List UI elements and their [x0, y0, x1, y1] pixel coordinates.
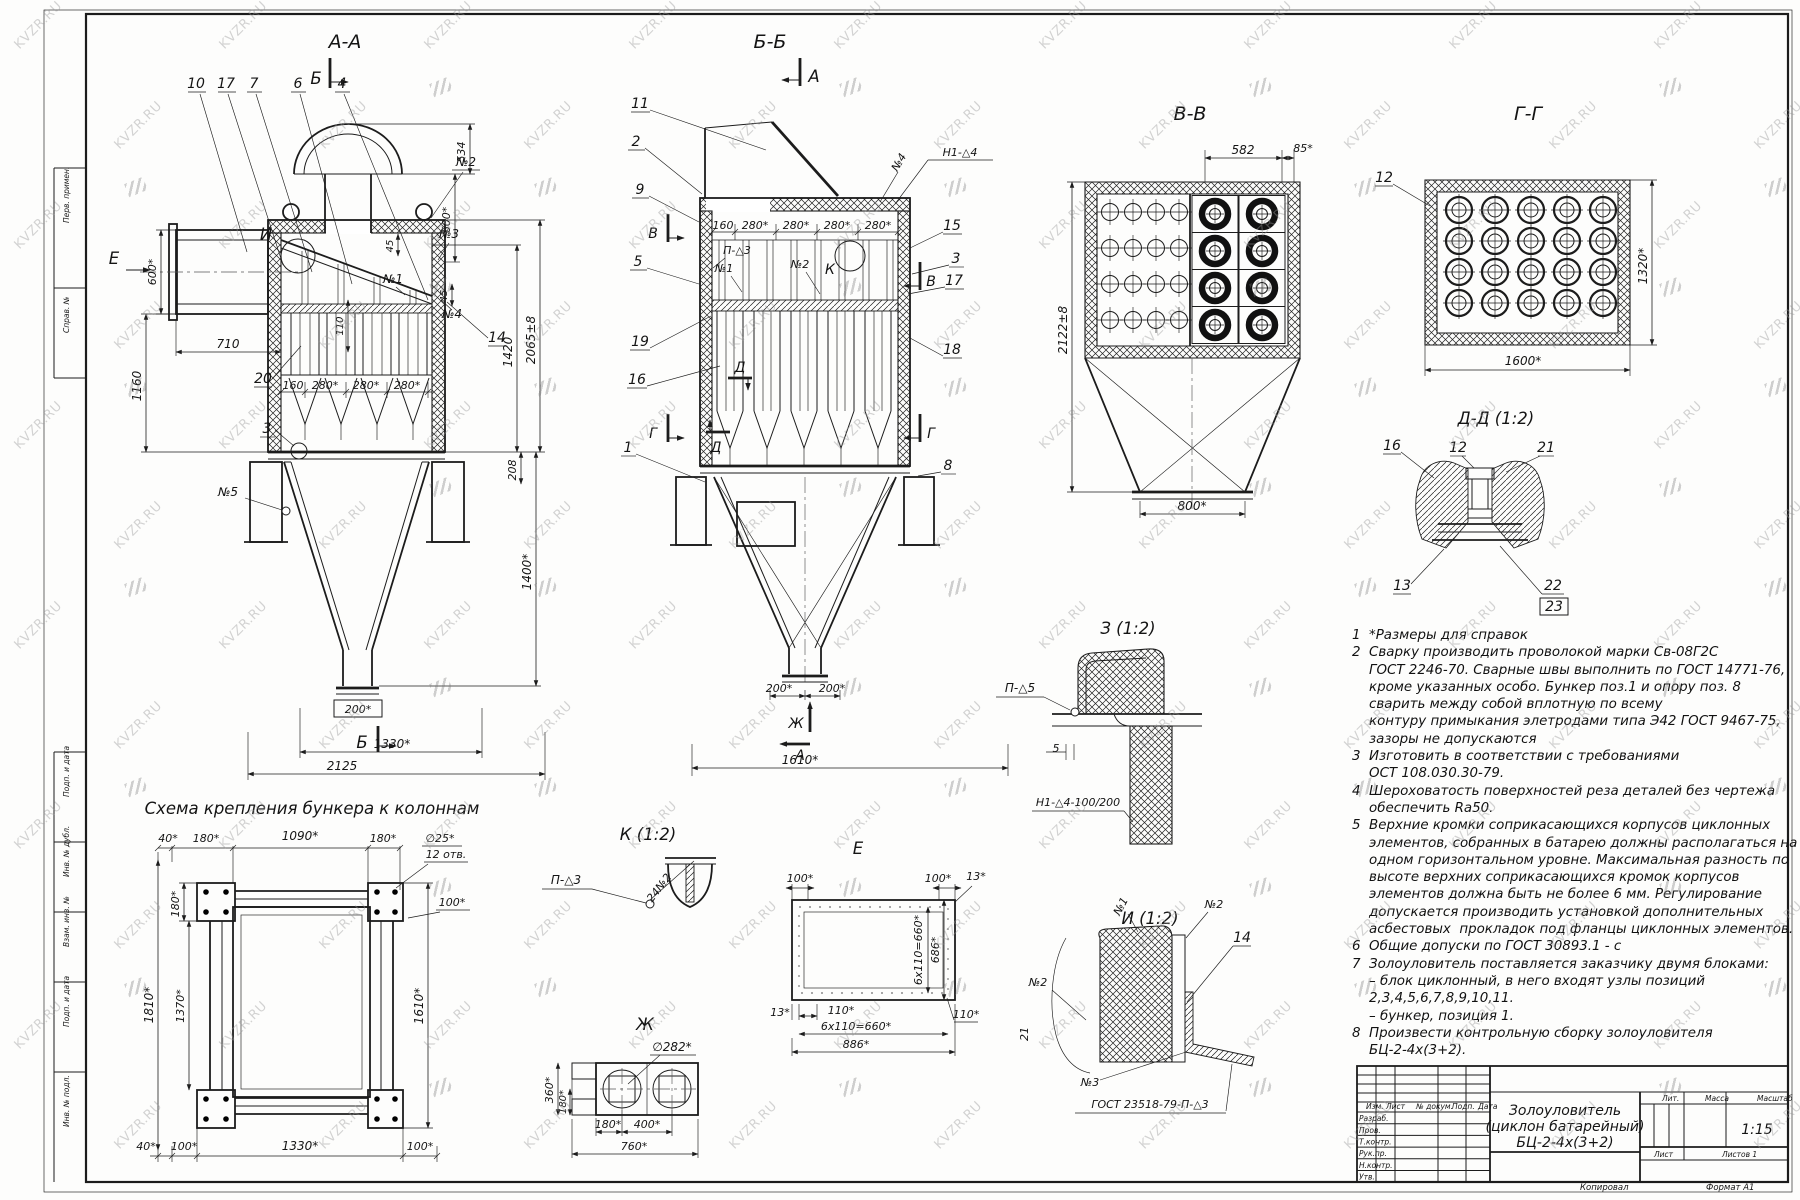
note-line: ОСТ 108.030.30-79. — [1352, 765, 1790, 782]
dim-label: 1320* — [1636, 248, 1650, 285]
technical-notes: 1 *Размеры для справок2 Сварку производи… — [1352, 627, 1790, 1059]
doc-title-line: Золоуловитель — [1509, 1103, 1621, 1119]
dim-label: 200* — [766, 682, 793, 695]
tb-col: № докум. — [1415, 1102, 1453, 1111]
note-line: 1 *Размеры для справок — [1352, 627, 1790, 644]
view-title: А-А — [327, 31, 362, 53]
note-line: 5 Верхние кромки соприкасающихся корпусо… — [1352, 817, 1790, 834]
tb-label: Копировал — [1580, 1183, 1629, 1193]
dim-label: 2122±8 — [1056, 306, 1070, 355]
view-b-b: Б-Б А 160 280* 280* 280* 280* К П-△3 №1 … — [621, 31, 1008, 776]
callout-label: 21 — [1018, 1027, 1031, 1041]
view-g-g: Г-Г 12 1600* 1320* — [1375, 103, 1657, 376]
dim-label: 582 — [1232, 143, 1255, 157]
dim-label: 280* — [742, 219, 769, 232]
dim-label: 208 — [506, 460, 519, 481]
callout-label: №3 — [1080, 1076, 1099, 1089]
dim-label: 180* — [595, 1118, 622, 1131]
note-line: одном горизонтальном уровне. Максимальна… — [1352, 852, 1790, 869]
dim-label: 100* — [925, 872, 952, 885]
detail-k: К (1:2) П-△3 24№2 — [542, 825, 716, 908]
section-marker: А — [807, 67, 819, 86]
tb-label: Лист — [1653, 1150, 1674, 1159]
callout-label: 17 — [945, 273, 963, 289]
note-line: 7 Золоуловитель поставляется заказчику д… — [1352, 956, 1790, 973]
dim-label: 6х110=660* — [821, 1020, 892, 1033]
weld-label: П-△5 — [1005, 681, 1035, 695]
tb-row: Рук.пр. — [1359, 1149, 1387, 1158]
dim-label: 40* — [136, 1140, 156, 1153]
note-line: 2 Сварку производить проволокой марки Св… — [1352, 644, 1790, 661]
callout-label: 21 — [1537, 440, 1555, 456]
section-marker: Б — [310, 69, 321, 88]
title-block: Изм. Лист № докум. Подп. Дата Разраб. Пр… — [1357, 1066, 1793, 1193]
stamp-label: Инв. № дубл. — [62, 826, 71, 877]
detail-d-d: Д-Д (1:2) 16 12 21 13 22 23 — [1383, 409, 1568, 615]
view-v-v: В-В 582 85* 2122±8 800* — [1056, 103, 1313, 518]
dim-label: 45 — [385, 240, 396, 253]
callout-label: 19 — [631, 334, 649, 350]
stamp-label: Взам. инв. № — [62, 896, 71, 947]
dim-label: 400* — [634, 1118, 661, 1131]
callout-label: №2 — [1204, 898, 1223, 911]
dim-label: ∅282* — [652, 1040, 691, 1054]
dim-label: 110* — [953, 1008, 980, 1021]
tb-label: Масштаб — [1757, 1094, 1793, 1103]
callout-label: 6 — [294, 76, 303, 92]
section-marker: В — [648, 226, 658, 242]
view-title: З (1:2) — [1100, 619, 1155, 638]
dim-label: 1610* — [412, 988, 426, 1025]
dim-label: 710 — [217, 337, 240, 351]
stamp-label: Подп. и дата — [62, 976, 71, 1027]
callout-label: 5 — [634, 254, 643, 270]
callout-label: 12 — [1449, 440, 1467, 456]
tb-col: Лист — [1385, 1102, 1406, 1111]
callout-label: 22 — [1544, 578, 1562, 594]
dim-label: 110* — [828, 1004, 855, 1017]
callout-label: №5 — [217, 485, 238, 499]
note-line: контуру примыкания элетродами типа Э42 Г… — [1352, 713, 1790, 730]
dim-label: 886* — [843, 1038, 870, 1051]
note-line: сварить между собой вплотную по всему — [1352, 696, 1790, 713]
callout-label: 12 — [1375, 170, 1393, 186]
dim-label: 12 отв. — [426, 848, 467, 861]
section-marker: Д — [710, 440, 722, 456]
callout-label: 18 — [943, 342, 961, 358]
callout-label: 3 — [263, 421, 272, 437]
note-line: – бункер, позиция 1. — [1352, 1008, 1790, 1025]
note-line: ГОСТ 2246-70. Сварные швы выполнить по Г… — [1352, 662, 1790, 679]
weld-label: П-△3 — [723, 244, 751, 257]
view-title: Ж — [635, 1015, 655, 1034]
view-arrow-label: Ж — [787, 716, 804, 732]
dim-label: 100* — [171, 1140, 198, 1153]
note-line: обеспечить Ra50. — [1352, 800, 1790, 817]
view-title: В-В — [1174, 103, 1207, 125]
callout-label: 15 — [943, 218, 961, 234]
tb-label: Формат А1 — [1706, 1183, 1754, 1193]
section-marker: Б — [356, 733, 367, 752]
detail-marker: И — [260, 225, 272, 244]
dim-label: 13* — [770, 1006, 790, 1019]
view-arrow-label: Е — [109, 249, 120, 268]
weld-label: Н1-△4 — [943, 146, 978, 159]
callout-label: 14 — [1233, 930, 1251, 946]
dim-label: 1160 — [130, 370, 144, 401]
weld-label: П-△3 — [551, 873, 581, 887]
tb-label: Масса — [1705, 1094, 1729, 1103]
note-line: элементов, собранных в батарею должны ра… — [1352, 835, 1790, 852]
callout-label: 10 — [187, 76, 205, 92]
dim-label: 100* — [407, 1140, 434, 1153]
tb-row: Пров. — [1359, 1126, 1381, 1135]
section-marker: Г — [649, 426, 658, 442]
note-line: элементов должна быть не более 6 мм. Рег… — [1352, 886, 1790, 903]
note-line: 2,3,4,5,6,7,8,9,10,11. — [1352, 990, 1790, 1007]
view-title: Д-Д (1:2) — [1457, 409, 1534, 428]
dim-label: 1370* — [174, 989, 187, 1023]
dim-label: 760* — [621, 1140, 648, 1153]
view-title: Г-Г — [1514, 103, 1543, 125]
tb-label: Лит. — [1661, 1094, 1679, 1103]
dim-label: 1810* — [142, 987, 156, 1024]
tb-col: Изм. — [1366, 1102, 1384, 1111]
dim-label: 180* — [169, 890, 182, 917]
dim-label: 280* — [824, 219, 851, 232]
dim-label: 180* — [558, 1090, 569, 1114]
section-marker: Г — [927, 426, 936, 442]
dim-label: 280* — [312, 379, 339, 392]
dim-label: 1600* — [1505, 354, 1542, 368]
dim-label: 200* — [345, 703, 372, 716]
stamp-label: Инв. № подл. — [62, 1075, 71, 1127]
callout-label: 16 — [628, 372, 646, 388]
callout-label: 23 — [1545, 599, 1563, 615]
callout-label: 4 — [338, 76, 347, 92]
view-title: К (1:2) — [620, 825, 676, 844]
callout-label: 1 — [624, 440, 633, 456]
stamp-label: Подп. и дата — [62, 746, 71, 797]
dim-label: 2125 — [327, 759, 358, 773]
dim-label: 1400* — [520, 554, 534, 591]
view-title: Б-Б — [754, 31, 787, 53]
note-line: зазоры не допускаются — [1352, 731, 1790, 748]
weld-label: 24№2 — [644, 871, 674, 905]
doc-title-line: (циклон батарейный) — [1486, 1119, 1645, 1135]
scheme-title: Схема крепления бункера к колоннам — [145, 799, 480, 818]
dim-label: 280* — [353, 379, 380, 392]
dim-label: 280* — [783, 219, 810, 232]
dim-label: 1330* — [374, 737, 411, 751]
dim-label: 85* — [1293, 142, 1313, 155]
note-line: кроме указанных особо. Бункер поз.1 и оп… — [1352, 679, 1790, 696]
note-line: высоте верхних соприкасающихся кромок ко… — [1352, 869, 1790, 886]
callout-label: 17 — [217, 76, 235, 92]
dim-label: 1420 — [501, 336, 515, 367]
scheme-bunker: Схема крепления бункера к колоннам 40* 1… — [136, 799, 479, 1162]
section-marker: В — [926, 274, 936, 290]
dim-label: 110 — [335, 316, 346, 335]
tb-row: Разраб. — [1359, 1114, 1388, 1123]
tb-row: Утв. — [1359, 1173, 1375, 1182]
dim-label: 1610* — [782, 753, 819, 767]
dim-label: 600* — [146, 258, 159, 285]
tb-row: Н.контр. — [1359, 1161, 1393, 1170]
callout-label: 20 — [254, 371, 272, 387]
note-line: 8 Произвести контрольную сборку золоулов… — [1352, 1025, 1790, 1042]
dim-label: 45 — [439, 290, 450, 303]
callout-label: №1 — [382, 272, 403, 286]
dim-label: 40* — [158, 832, 178, 845]
dim-label: 100* — [787, 872, 814, 885]
dim-label: 280* — [865, 219, 892, 232]
note-line: 6 Общие допуски по ГОСТ 30893.1 - с — [1352, 938, 1790, 955]
dim-label: 800* — [1178, 499, 1207, 513]
scale-value: 1:15 — [1741, 1122, 1773, 1138]
dim-label: 1090* — [282, 829, 319, 843]
callout-label: №4 — [888, 151, 909, 174]
callout-label: 7 — [250, 76, 259, 92]
stamp-label: Перв. примен. — [62, 167, 71, 223]
callout-label: ГОСТ 23518-79-П-△3 — [1091, 1098, 1208, 1111]
dim-label: 180* — [193, 832, 220, 845]
callout-label: 3 — [952, 251, 961, 267]
note-line: асбестовых прокладок под фланцы циклонны… — [1352, 921, 1790, 938]
detail-z: З (1:2) П-△5 5 — [996, 619, 1202, 844]
dim-label: 200* — [819, 682, 846, 695]
view-a-a: А-А Б И 160 280* 280* 280* 200* Б 10 17 … — [109, 31, 545, 780]
view-e: Е 100* 100* 13* 6х110=660* 686* 13* 110*… — [770, 839, 986, 1056]
dim-label: 6х110=660* — [912, 914, 925, 985]
callout-label: №2 — [1028, 976, 1047, 989]
callout-label: 2 — [632, 134, 641, 150]
note-line: БЦ-2-4х(3+2). — [1352, 1042, 1790, 1059]
tb-row: Т.контр. — [1359, 1138, 1392, 1147]
callout-label: 13 — [1393, 578, 1411, 594]
dim-label: 1330* — [282, 1139, 319, 1153]
callout-label: 8 — [944, 458, 953, 474]
tb-col: Дата — [1477, 1102, 1498, 1111]
callout-label: №4 — [441, 307, 462, 321]
dim-label: 686* — [929, 936, 942, 963]
note-line: допускается производить установкой допол… — [1352, 904, 1790, 921]
dim-label: 2065±8 — [524, 316, 538, 365]
drawing-sheet: Перв. примен. Справ. № Подп. и дата Инв.… — [0, 0, 1800, 1200]
dim-label: 13* — [966, 870, 986, 883]
view-zh: Ж ∅282* 360* 180* 180* 400* 760* — [543, 1015, 698, 1158]
dim-label: 5 — [1053, 742, 1060, 755]
note-line: 3 Изготовить в соответствии с требования… — [1352, 748, 1790, 765]
callout-label: 9 — [636, 182, 645, 198]
note-line: 4 Шероховатость поверхностей реза детале… — [1352, 783, 1790, 800]
weld-label: Н1-△4-100/200 — [1036, 796, 1120, 809]
dim-label: 100* — [439, 896, 466, 909]
dim-label: 534 — [455, 142, 468, 163]
callout-label: №2 — [790, 258, 809, 271]
callout-label: №1 — [714, 262, 733, 275]
dim-label: 180* — [370, 832, 397, 845]
dim-label: 160 — [713, 219, 734, 232]
doc-title-line: БЦ-2-4х(3+2) — [1516, 1135, 1613, 1151]
note-line: – блок циклонный, в него входят узлы поз… — [1352, 973, 1790, 990]
tb-label: Листов 1 — [1721, 1150, 1757, 1159]
detail-marker: К — [825, 262, 836, 278]
tb-col: Подп. — [1452, 1102, 1475, 1111]
view-title: Е — [853, 839, 864, 858]
view-title: И (1:2) — [1121, 909, 1178, 928]
stamp-label: Справ. № — [62, 296, 71, 333]
callout-label: 16 — [1383, 438, 1401, 454]
dim-label: 360* — [543, 1076, 556, 1103]
dim-label: ∅25* — [425, 832, 455, 845]
section-marker: Д — [734, 360, 746, 376]
callout-label: 11 — [631, 96, 649, 112]
